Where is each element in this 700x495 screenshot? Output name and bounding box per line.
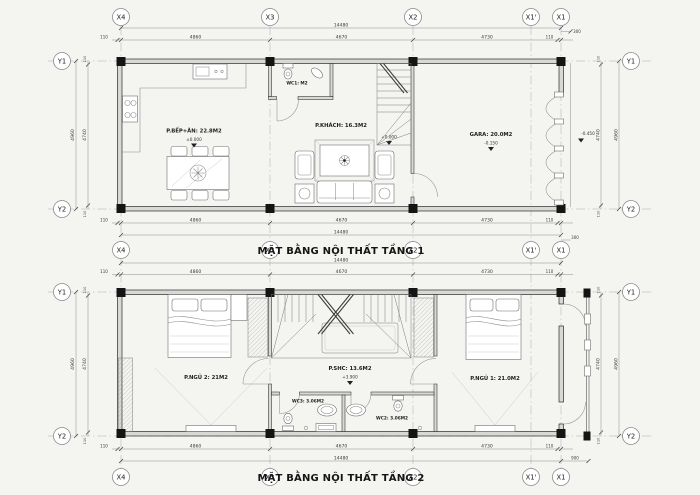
svg-text:14480: 14480: [334, 456, 349, 462]
bedroom1-zone: P.NGỦ 1: 21.0M2: [452, 295, 538, 432]
dim-edge: 110: [100, 35, 108, 40]
svg-text:-0.450: -0.450: [581, 131, 595, 136]
svg-text:4860: 4860: [190, 218, 202, 224]
dim-edge: 110: [546, 35, 554, 40]
grid-bubble-x4: X4: [117, 14, 126, 22]
stove-icon: [123, 96, 138, 122]
svg-text:4670: 4670: [336, 269, 348, 275]
svg-text:X4: X4: [117, 247, 126, 255]
svg-text:110: 110: [83, 286, 87, 294]
elevation-marker-icon: [347, 381, 353, 385]
balcony-post: [585, 314, 591, 324]
svg-text:110: 110: [546, 218, 554, 223]
wc3-label: WC3: 3.06M2: [292, 399, 324, 405]
wc1-label: WC1: M2: [286, 81, 307, 87]
svg-text:Y2: Y2: [626, 206, 635, 214]
bedroom2-zone: P.NGỦ 2: 21M2: [155, 295, 268, 432]
wc3-zone: WC3: 3.06M2: [283, 399, 337, 432]
wc3-toilet-icon: [284, 413, 292, 423]
wc2-label: WC2: 3.06M2: [376, 416, 408, 422]
floor1-right-dimensions: 4740 110 110 4960: [596, 55, 622, 218]
grid-bubble-y1: Y1: [57, 58, 66, 66]
svg-text:14480: 14480: [334, 258, 349, 264]
kitchen-sink-unit: [193, 64, 227, 79]
dim-front-offset: 300: [573, 29, 581, 34]
floor1-title: MẶT BẰNG NỘI THẤT TẦNG 1: [257, 242, 424, 257]
svg-text:X1: X1: [557, 247, 566, 255]
floor2-plan: 14480 110 4860 4670 4730 110: [70, 258, 621, 464]
svg-text:4860: 4860: [190, 269, 202, 275]
wardrobe-bedroom1: [414, 298, 434, 357]
svg-text:110: 110: [597, 210, 601, 218]
dim-balcony-offset: 900: [571, 456, 579, 461]
stairs-floor1: [377, 64, 411, 146]
wc3-shower-tray: [316, 424, 336, 432]
balcony-post: [585, 340, 591, 350]
svg-text:4960: 4960: [70, 129, 76, 141]
svg-text:X1': X1': [526, 474, 537, 482]
svg-text:Y2: Y2: [57, 433, 66, 441]
svg-text:4740: 4740: [82, 358, 88, 370]
svg-text:4730: 4730: [481, 218, 493, 224]
svg-text:4740: 4740: [596, 358, 602, 370]
sofa-set: [295, 140, 394, 203]
garage-zone: GARA: 20.0M2 -0.150: [470, 92, 564, 205]
tv-cabinet-bedroom1: [475, 426, 515, 432]
svg-text:110: 110: [546, 444, 554, 449]
family-label: P.SHC: 13.6M2: [328, 366, 371, 372]
wc1-basin-icon: [310, 66, 325, 80]
dim-bay2: 4670: [336, 35, 348, 41]
kitchen-label: P.BẾP+ĂN: 22.8M2: [166, 127, 222, 135]
wall-wc3-wc2: [342, 395, 345, 432]
svg-text:300: 300: [571, 235, 579, 240]
svg-text:110: 110: [597, 286, 601, 294]
living-label: P.KHÁCH: 16.3M2: [315, 122, 367, 129]
svg-text:Y1: Y1: [626, 289, 635, 297]
kitchen-counter: [123, 64, 247, 153]
svg-text:X1': X1': [526, 247, 537, 255]
floor1-outside-elevation: -0.450: [578, 131, 595, 143]
stair-landing: [322, 323, 398, 353]
tv-cabinet-bedroom2: [186, 426, 236, 432]
wc1-zone: WC1: M2: [283, 64, 324, 87]
balcony-door-top-arc: [564, 304, 586, 326]
floorplan-sheet: 14480 110 4860 4670 4730 110 300: [0, 0, 700, 495]
wc2-toilet-icon: [394, 401, 402, 411]
garage-elevation: -0.150: [484, 141, 498, 146]
svg-text:4730: 4730: [481, 269, 493, 275]
dining-table: [167, 147, 229, 201]
dim-total-top-f1: 14480: [334, 23, 349, 29]
grid-bubble-x3: X3: [266, 14, 275, 22]
svg-text:110: 110: [83, 437, 87, 445]
floor-drain-icon: [304, 426, 308, 430]
floor1-top-dimensions: 14480 110 4860 4670 4730 110 300: [100, 23, 581, 43]
svg-text:Y1: Y1: [57, 289, 66, 297]
floor1-left-dimensions: 4960 4740 110 110: [70, 55, 90, 218]
wc2-zone: WC2: 3.06M2: [347, 396, 422, 430]
floor-drain-icon: [418, 426, 422, 430]
wc1-toilet-tank: [283, 64, 293, 69]
bedside-cabinet: [231, 295, 247, 321]
floor2-top-dimensions: 14480 110 4860 4670 4730 110: [100, 258, 573, 277]
floor2-left-dimensions: 4960 4740 110 110: [70, 286, 90, 445]
wardrobe-bedroom2: [248, 298, 268, 357]
svg-text:4960: 4960: [614, 358, 620, 370]
dim-bay1: 4860: [190, 35, 202, 41]
kitchen-elevation: ±0.000: [186, 137, 202, 142]
svg-text:110: 110: [100, 269, 108, 274]
garage-hall-door-arc: [414, 174, 438, 198]
bedroom2-door-arc: [243, 359, 269, 385]
stair-cut-mark: [380, 64, 408, 94]
svg-text:4670: 4670: [336, 218, 348, 224]
wc2-basin-icon: [347, 404, 366, 416]
svg-text:110: 110: [597, 437, 601, 445]
svg-text:X4: X4: [117, 474, 126, 482]
floor1-bottom-dimensions: 110 4860 4670 4730 110 14480 300: [100, 218, 579, 241]
elevation-marker-icon: [578, 139, 584, 143]
svg-text:110: 110: [546, 269, 554, 274]
side-table-left: [295, 184, 314, 203]
balcony-zone: [584, 289, 591, 441]
family-zone: P.SHC: 13.6M2 +3.900: [328, 366, 371, 385]
svg-text:110: 110: [100, 444, 108, 449]
garage-label: GARA: 20.0M2: [470, 132, 513, 138]
wall-bedroom1: [434, 295, 437, 357]
svg-text:110: 110: [83, 210, 87, 218]
family-elevation: +3.900: [342, 375, 358, 380]
svg-text:4740: 4740: [82, 129, 88, 141]
kitchen-zone: P.BẾP+ĂN: 22.8M2 ±0.000: [123, 64, 247, 201]
stair-cut-mark: [318, 295, 354, 335]
balcony-door-bottom-arc: [564, 402, 586, 424]
svg-text:4960: 4960: [614, 129, 620, 141]
floor1-plan: 14480 110 4860 4670 4730 110 300: [70, 23, 621, 241]
dim-bay3: 4730: [481, 35, 493, 41]
floor2-right-dimensions: 4740 110 110 4960: [596, 286, 622, 445]
wc3-basin-icon: [318, 404, 337, 416]
grid-bubble-x1: X1: [557, 14, 566, 22]
balcony-post: [585, 366, 591, 376]
floor2-title: MẶT BẰNG NỘI THẤT TẦNG 2: [257, 469, 424, 484]
svg-text:110: 110: [83, 55, 87, 63]
floor2-bottom-dimensions: 110 4860 4670 4730 110 14480 900: [100, 444, 590, 464]
svg-text:Y1: Y1: [626, 58, 635, 66]
bedroom2-label: P.NGỦ 2: 21M2: [184, 373, 228, 381]
grid-bubble-y2: Y2: [57, 206, 66, 214]
living-zone: P.KHÁCH: 16.3M2 +0.000: [295, 122, 397, 203]
wc1-door-arc: [277, 100, 299, 122]
stairs-floor2: [272, 295, 434, 359]
svg-text:Y2: Y2: [626, 433, 635, 441]
wall-garage: [411, 64, 414, 174]
wall-wc1-hall: [330, 64, 333, 97]
wall-kitchen-wc1: [269, 64, 272, 97]
svg-text:X1: X1: [557, 474, 566, 482]
grid-bubble-x2: X2: [409, 14, 418, 22]
svg-text:4670: 4670: [336, 444, 348, 450]
bedroom1-label: P.NGỦ 1: 21.0M2: [470, 374, 520, 382]
bedroom1-door-arc: [411, 359, 437, 385]
sofa: [317, 181, 372, 203]
side-table-right: [375, 184, 394, 203]
svg-text:110: 110: [100, 218, 108, 223]
grid-bubble-x1p: X1': [526, 14, 537, 22]
wall-bedroom2: [269, 295, 272, 357]
svg-text:4860: 4860: [190, 444, 202, 450]
svg-text:14480: 14480: [334, 230, 349, 236]
wc1-toilet-icon: [284, 69, 292, 79]
svg-text:4730: 4730: [481, 444, 493, 450]
bed-double: [168, 295, 231, 358]
elevation-marker-icon: [488, 147, 494, 151]
bed-double: [466, 295, 521, 360]
left-void-strip: [119, 358, 133, 432]
svg-text:4960: 4960: [70, 358, 76, 370]
svg-text:4740: 4740: [596, 129, 602, 141]
svg-text:110: 110: [597, 55, 601, 63]
